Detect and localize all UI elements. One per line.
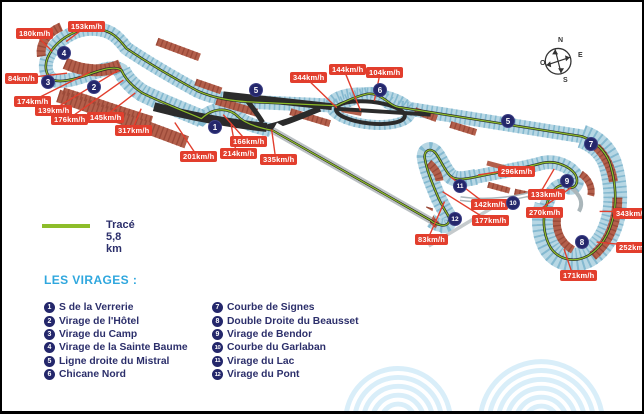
- corner-number-badge: 8: [212, 316, 223, 327]
- trace-swatch: [42, 224, 90, 228]
- circuit-infographic: N E S O 180km/h153km/h84km/h174km/h139km…: [0, 0, 644, 414]
- speed-label: 166km/h: [230, 136, 267, 147]
- corner-name: Virage de l'Hôtel: [59, 316, 139, 327]
- speed-label: 177km/h: [472, 215, 509, 226]
- leader-line: [429, 202, 445, 238]
- corner-item: 9Virage de Bendor: [212, 328, 432, 341]
- corner-name: Virage du Camp: [59, 329, 137, 340]
- turn-badge: 1: [208, 120, 222, 134]
- speed-label: 344km/h: [290, 72, 327, 83]
- speed-label: 335km/h: [260, 154, 297, 165]
- speed-label: 83km/h: [415, 234, 448, 245]
- speed-label: 252km/h: [616, 242, 644, 253]
- corner-name: Courbe de Signes: [227, 302, 315, 313]
- corner-name: Virage de Bendor: [227, 329, 312, 340]
- speed-label: 214km/h: [220, 148, 257, 159]
- speed-label: 171km/h: [560, 270, 597, 281]
- turn-badge: 6: [373, 83, 387, 97]
- speed-label: 145km/h: [87, 112, 124, 123]
- corner-name: Courbe du Garlaban: [227, 342, 326, 353]
- virages-section: LES VIRAGES : 1S de la Verrerie2Virage d…: [44, 273, 464, 381]
- turn-badge: 4: [57, 46, 71, 60]
- corner-item: 5Ligne droite du Mistral: [44, 355, 212, 368]
- corner-item: 10Courbe du Garlaban: [212, 341, 432, 354]
- corner-item: 1S de la Verrerie: [44, 301, 212, 314]
- corner-item: 12Virage du Pont: [212, 368, 432, 381]
- speed-label: 296km/h: [498, 166, 535, 177]
- speed-label: 133km/h: [528, 189, 565, 200]
- speed-label: 84km/h: [5, 73, 38, 84]
- virages-column-1: 1S de la Verrerie2Virage de l'Hôtel3Vira…: [44, 301, 212, 381]
- turn-badge: 3: [41, 75, 55, 89]
- speed-label: 153km/h: [68, 21, 105, 32]
- corner-name: S de la Verrerie: [59, 302, 133, 313]
- turn-badge: 5: [249, 83, 263, 97]
- corner-name: Double Droite du Beausset: [227, 316, 359, 327]
- speed-label: 270km/h: [526, 207, 563, 218]
- virages-heading: LES VIRAGES :: [44, 273, 464, 287]
- corner-item: 2Virage de l'Hôtel: [44, 314, 212, 327]
- speed-label: 180km/h: [16, 28, 53, 39]
- corner-name: Virage du Lac: [227, 356, 294, 367]
- corner-number-badge: 6: [44, 369, 55, 380]
- speed-label: 343km/h: [613, 208, 644, 219]
- speed-label: 176km/h: [51, 114, 88, 125]
- corner-number-badge: 1: [44, 302, 55, 313]
- corner-item: 8Double Droite du Beausset: [212, 314, 432, 327]
- corner-number-badge: 12: [212, 369, 223, 380]
- corner-item: 3Virage du Camp: [44, 328, 212, 341]
- corner-name: Virage du Pont: [227, 369, 299, 380]
- corner-number-badge: 10: [212, 342, 223, 353]
- corner-item: 11Virage du Lac: [212, 355, 432, 368]
- turn-badge: 5: [501, 114, 515, 128]
- corner-number-badge: 2: [44, 316, 55, 327]
- corner-number-badge: 11: [212, 356, 223, 367]
- turn-badge: 9: [560, 174, 574, 188]
- corner-item: 4Virage de la Sainte Baume: [44, 341, 212, 354]
- corner-number-badge: 7: [212, 302, 223, 313]
- corner-number-badge: 4: [44, 342, 55, 353]
- turn-badge: 8: [575, 235, 589, 249]
- turn-badge: 2: [87, 80, 101, 94]
- corner-name: Virage de la Sainte Baume: [59, 342, 188, 353]
- corner-item: 7Courbe de Signes: [212, 301, 432, 314]
- corner-item: 6Chicane Nord: [44, 368, 212, 381]
- speed-label: 142km/h: [471, 199, 508, 210]
- speed-label: 317km/h: [115, 125, 152, 136]
- speed-label: 144km/h: [329, 64, 366, 75]
- trace-label: Tracé 5,8 km: [106, 219, 135, 255]
- corner-name: Ligne droite du Mistral: [59, 356, 169, 367]
- turn-badge: 11: [453, 179, 467, 193]
- turn-badge: 12: [448, 212, 462, 226]
- speed-label: 104km/h: [366, 67, 403, 78]
- turn-badge: 10: [506, 196, 520, 210]
- virages-column-2: 7Courbe de Signes8Double Droite du Beaus…: [212, 301, 432, 381]
- corner-number-badge: 5: [44, 356, 55, 367]
- corner-number-badge: 9: [212, 329, 223, 340]
- corner-name: Chicane Nord: [59, 369, 126, 380]
- corner-number-badge: 3: [44, 329, 55, 340]
- speed-label: 201km/h: [180, 151, 217, 162]
- leader-line: [344, 69, 361, 110]
- turn-badge: 7: [584, 137, 598, 151]
